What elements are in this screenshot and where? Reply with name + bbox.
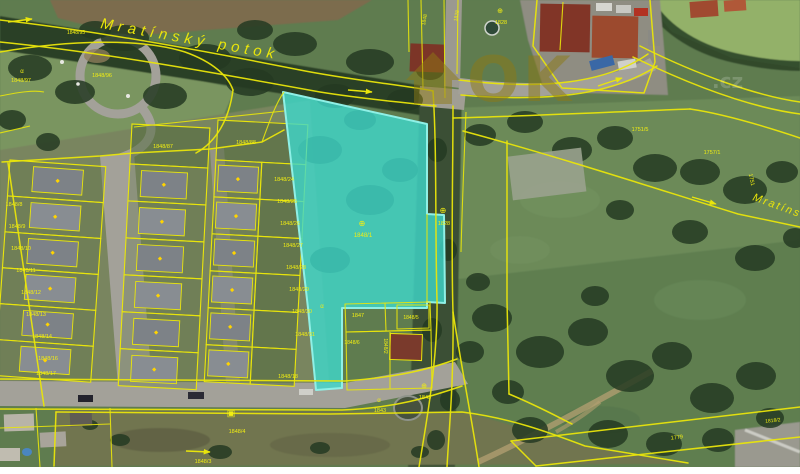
parcel-label: 1848/9 — [9, 224, 26, 230]
cadastral-map[interactable]: 1848/95α1848/971848/961848/871848/881848… — [0, 0, 800, 474]
parcel-label: 1848/29 — [289, 287, 309, 293]
parcel-label: 1848/16 — [38, 356, 58, 362]
parcel-label: 1848/18 — [278, 374, 298, 380]
parcel-label: 1848/4 — [229, 429, 246, 435]
parcel-label: 1843 — [419, 395, 431, 401]
bottom-margin — [0, 467, 800, 474]
parcel-label: 1847 — [352, 313, 364, 319]
parcel-label: 1848/28 — [286, 265, 306, 271]
parcel-label: 1848/2 — [382, 338, 388, 354]
parcel-label: α — [320, 304, 324, 310]
parcel-label: 1848/12 — [21, 290, 41, 296]
parcel-label: 1848/3 — [195, 459, 212, 465]
parcel-label: 1828 — [495, 20, 507, 26]
parcel-label: 1848/14 — [32, 334, 52, 340]
parcel-label: 1751/5 — [632, 127, 649, 133]
parcel-label: 1848/5 — [403, 315, 419, 321]
parcel-label: 1843 — [374, 408, 386, 414]
parcel-label: 1848/11 — [16, 268, 35, 274]
parcel-label: 1848/6 — [344, 340, 360, 346]
house-row-column — [118, 124, 210, 390]
parcel-label: 1848/1 — [354, 233, 373, 239]
parcel-label: 1757/1 — [704, 150, 721, 156]
parcel-label: 1848/8 — [6, 202, 23, 208]
parcel-label: 1848/17 — [36, 371, 56, 377]
parcel-label: 1848/97 — [11, 78, 31, 84]
watermark-suffix: .cz — [712, 69, 743, 93]
parcel-label: 1848/27 — [283, 243, 303, 249]
parcel-label: 1848/87 — [153, 144, 173, 150]
parcel-label: ▣ — [227, 408, 236, 418]
parcel-label: 1848/10 — [11, 246, 31, 252]
parcel-label: 1848/96 — [92, 73, 112, 79]
parcel-label: 1848/25 — [277, 199, 297, 205]
watermark-text: OK — [467, 43, 574, 116]
parcel-label: ⊕ — [421, 383, 427, 390]
parcel-label: 1848/31 — [295, 332, 315, 338]
parcel-label: 1828 — [438, 221, 450, 227]
parcel-label: ⊕ — [440, 206, 447, 215]
parcel-label: ⊕ — [359, 219, 366, 228]
parcel-label: 1848/30 — [292, 309, 312, 315]
parcel-label: 1848/88 — [236, 140, 256, 146]
parcel-label: α — [20, 69, 24, 75]
parcel-label: 1848/13 — [26, 312, 46, 318]
parcel-label: ⊕ — [497, 8, 503, 15]
parcel-label: α — [377, 398, 381, 404]
parcel-label: 1848/95 — [67, 30, 85, 36]
parcel-label: 1848/26 — [280, 221, 300, 227]
parcel-label: 1848/24 — [274, 177, 294, 183]
parcel-label: 1779 — [670, 434, 683, 441]
map-svg[interactable]: 1848/95α1848/971848/961848/871848/881848… — [0, 0, 800, 474]
